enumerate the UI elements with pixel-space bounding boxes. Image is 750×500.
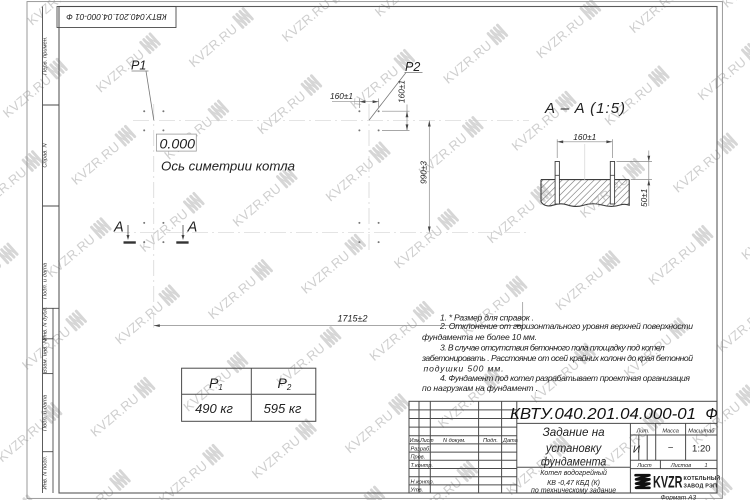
svg-text:490 кг: 490 кг	[195, 401, 233, 416]
svg-text:Дата: Дата	[502, 438, 518, 444]
svg-text:Пров.: Пров.	[411, 455, 426, 461]
svg-text:Котел водогрейный: Котел водогрейный	[540, 469, 607, 477]
svg-text:Перв. примен.: Перв. примен.	[43, 36, 49, 75]
svg-text:забетонировать . Расстояние от: забетонировать . Расстояние от осей край…	[421, 353, 693, 363]
svg-text:ЗАВОД РЭП: ЗАВОД РЭП	[684, 484, 718, 490]
svg-text:160±1: 160±1	[573, 132, 596, 142]
svg-text:P2: P2	[405, 60, 420, 74]
svg-text:Инв. N дубл.: Инв. N дубл.	[43, 307, 49, 341]
svg-text:Масса: Масса	[662, 429, 679, 435]
svg-text:50±1: 50±1	[639, 189, 649, 207]
svg-text:фундамента: фундамента	[541, 454, 607, 468]
svg-text:Масштаб: Масштаб	[688, 429, 715, 435]
svg-text:Лист: Лист	[419, 438, 434, 444]
svg-text:160±1: 160±1	[397, 80, 407, 103]
svg-text:1715±2: 1715±2	[338, 314, 368, 324]
svg-text:Подп. и дата: Подп. и дата	[43, 262, 49, 299]
svg-text:Формат А3: Формат А3	[661, 494, 697, 500]
svg-text:Справ. N: Справ. N	[43, 143, 49, 168]
svg-text:Подп. и дата: Подп. и дата	[43, 394, 49, 431]
svg-text:Подп.: Подп.	[483, 438, 498, 444]
svg-text:0.000: 0.000	[160, 137, 196, 153]
svg-text:A: A	[113, 220, 124, 236]
svg-text:595 кг: 595 кг	[264, 401, 302, 416]
svg-text:Листов: Листов	[670, 463, 691, 469]
svg-text:N докум.: N докум.	[443, 438, 466, 444]
svg-text:A: A	[187, 220, 198, 236]
svg-text:КВТУ.040.201.04.000-01: КВТУ.040.201.04.000-01	[510, 406, 696, 423]
svg-text:по техническому задание: по техническому задание	[531, 486, 616, 494]
svg-text:4. Фундамент под котел разраба: 4. Фундамент под котел разрабатывает про…	[440, 373, 690, 383]
svg-text:160±1: 160±1	[330, 91, 353, 101]
svg-text:фундамента не более 10 мм.: фундамента не более 10 мм.	[422, 332, 537, 342]
svg-text:Ф: Ф	[705, 406, 717, 423]
svg-text:Лит.: Лит.	[635, 429, 649, 435]
svg-text:Взам. инв. N: Взам. инв. N	[43, 339, 49, 374]
svg-text:КВТУ.040.201.04.000-01 Ф: КВТУ.040.201.04.000-01 Ф	[66, 12, 167, 22]
svg-text:3. В случае отсутствия бетонно: 3. В случае отсутствия бетонного пола пл…	[440, 342, 665, 352]
svg-text:КОТЕЛЬНЫЙ: КОТЕЛЬНЫЙ	[684, 474, 721, 482]
svg-text:A – A (1:5): A – A (1:5)	[544, 100, 626, 117]
svg-text:Утв.: Утв.	[410, 488, 424, 494]
svg-text:Н.контр.: Н.контр.	[411, 479, 435, 485]
svg-text:Инв. N подл.: Инв. N подл.	[43, 456, 49, 490]
svg-text:Т.контр.: Т.контр.	[411, 463, 434, 469]
svg-text:990±3: 990±3	[419, 161, 429, 184]
svg-text:по нагрузкам на фундамент .: по нагрузкам на фундамент .	[422, 383, 538, 393]
svg-text:2. Отклонение от горизонтально: 2. Отклонение от горизонтального уровня …	[439, 321, 693, 331]
svg-text:И: И	[633, 445, 641, 456]
svg-text:KVZR: KVZR	[653, 473, 683, 492]
svg-text:–: –	[667, 442, 673, 452]
svg-text:Лист: Лист	[636, 463, 652, 469]
svg-text:установку: установку	[545, 441, 602, 455]
svg-text:P1: P1	[131, 59, 146, 73]
svg-text:1: 1	[704, 463, 707, 469]
svg-text:Разраб.: Разраб.	[411, 447, 431, 453]
svg-text:КВ -0,47 КБД (К): КВ -0,47 КБД (К)	[547, 480, 600, 487]
svg-text:1:20: 1:20	[692, 444, 711, 455]
svg-text:подушки 500 мм.: подушки 500 мм.	[424, 364, 504, 374]
svg-text:Ось симетрии котла: Ось симетрии котла	[161, 159, 295, 174]
svg-text:Задание на: Задание на	[543, 425, 605, 439]
